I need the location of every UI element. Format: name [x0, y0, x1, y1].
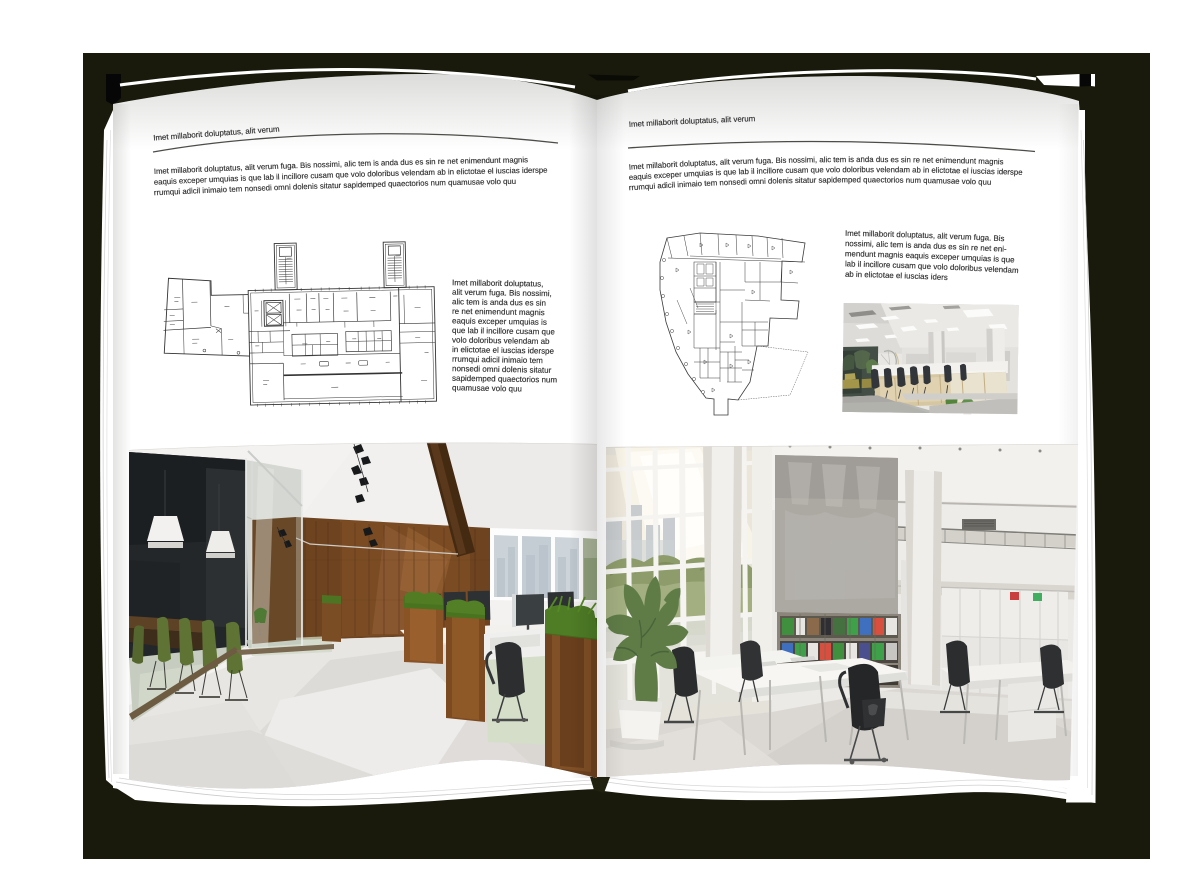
- svg-text:sapidemped quaectorios num: sapidemped quaectorios num: [452, 374, 558, 385]
- svg-text:eaquis exceper umquias is: eaquis exceper umquias is: [452, 316, 547, 326]
- svg-text:que lab il incillore cusam que: que lab il incillore cusam que: [452, 326, 556, 337]
- svg-text:Imet millaborit doluptatus,: Imet millaborit doluptatus,: [452, 278, 543, 288]
- svg-text:in elictotae el iuscias idersp: in elictotae el iuscias iderspe: [452, 345, 555, 356]
- svg-text:rrumqui adicil inimaio tem: rrumqui adicil inimaio tem: [452, 355, 543, 366]
- svg-text:re net enimendunt magnis: re net enimendunt magnis: [452, 307, 545, 317]
- svg-text:quamusae volo quu: quamusae volo quu: [452, 383, 522, 393]
- svg-text:nonsedi omni dolenis sitatur: nonsedi omni dolenis sitatur: [452, 364, 552, 375]
- svg-text:alic tem is anda dus es sin: alic tem is anda dus es sin: [452, 297, 546, 307]
- svg-text:alit verum fuga. Bis nossimi,: alit verum fuga. Bis nossimi,: [452, 288, 552, 298]
- svg-text:volo doloribus velendam ab: volo doloribus velendam ab: [452, 336, 550, 347]
